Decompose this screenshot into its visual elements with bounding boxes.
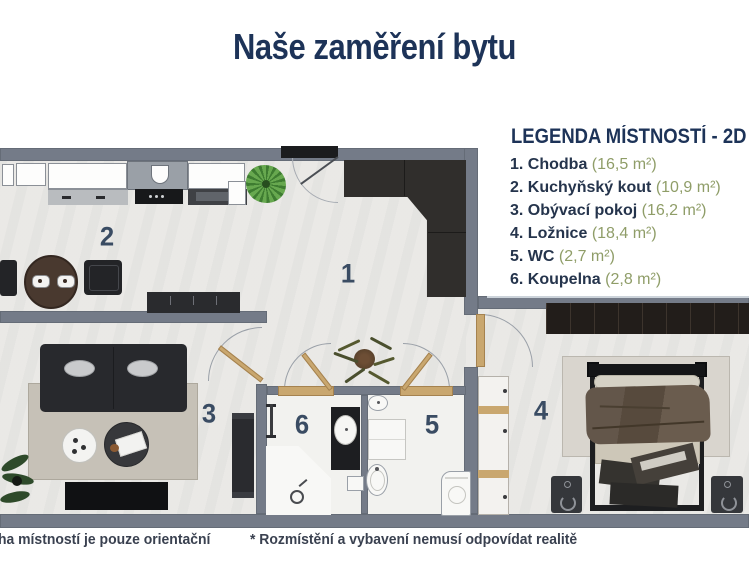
sideboard-line bbox=[216, 296, 217, 305]
cooktop-knob bbox=[155, 195, 158, 198]
appliance-lid bbox=[196, 192, 228, 201]
wardrobe-seam bbox=[404, 160, 405, 196]
footnote-left: ha místností je pouze orientační bbox=[0, 531, 210, 548]
page-title: Naše zaměření bytu bbox=[52, 26, 696, 68]
armchair-seat bbox=[89, 265, 119, 291]
bedroom-door-leaf bbox=[476, 314, 485, 367]
room-label-kitchen: 2 bbox=[100, 222, 114, 253]
plant-frond bbox=[370, 337, 393, 351]
cooktop-knob bbox=[149, 195, 152, 198]
sink-basin-icon bbox=[151, 165, 169, 184]
dining-table bbox=[24, 255, 78, 309]
tv-unit bbox=[65, 482, 168, 510]
decor-dot bbox=[72, 449, 77, 454]
legend-item: 6. Koupelna (2,8 m²) bbox=[510, 270, 749, 289]
nightstand-left bbox=[551, 476, 582, 513]
cooktop-knob bbox=[161, 195, 164, 198]
armchair-left bbox=[0, 260, 17, 296]
counter-handle bbox=[96, 196, 105, 199]
washbasin-icon bbox=[334, 415, 357, 445]
bedroom-shelf bbox=[478, 376, 509, 515]
chair-dot bbox=[38, 279, 42, 283]
plant-center bbox=[262, 180, 270, 188]
room-label-living: 3 bbox=[202, 399, 216, 430]
counter-handle bbox=[62, 196, 71, 199]
kitchen-sink-unit bbox=[127, 161, 188, 190]
room-label-bathroom: 6 bbox=[295, 410, 309, 441]
sofa-seam bbox=[113, 347, 114, 409]
plant-icon-hall bbox=[246, 165, 286, 203]
book-icon bbox=[115, 431, 147, 457]
bedroom-wardrobe bbox=[546, 303, 749, 334]
plant-frond bbox=[344, 367, 365, 383]
decor-dot bbox=[73, 438, 78, 443]
legend-heading: LEGENDA MÍSTNOSTÍ - 2D bbox=[511, 125, 720, 149]
wall-bath-wc-divider bbox=[361, 395, 368, 514]
legend-panel: LEGENDA MÍSTNOSTÍ - 2D 1. Chodba (16,5 m… bbox=[487, 110, 749, 298]
wc-cabinet bbox=[368, 419, 406, 460]
floorplan-page: Naše zaměření bytu bbox=[0, 0, 749, 562]
plant-center bbox=[12, 476, 22, 486]
wardrobe-seam bbox=[428, 232, 466, 233]
legend-item: 1. Chodba (16,5 m²) bbox=[510, 155, 749, 174]
vanity-cabinet bbox=[331, 407, 360, 470]
legend-item: 3. Obývací pokoj (16,2 m²) bbox=[510, 201, 749, 220]
dining-chair-icon bbox=[57, 275, 75, 288]
chair-dot bbox=[63, 279, 67, 283]
plant-icon-spider bbox=[333, 336, 395, 390]
footnote-right: * Rozmístění a vybavení nemusí odpovídat… bbox=[250, 531, 577, 548]
wall-top bbox=[0, 148, 478, 161]
entrance-door-icon bbox=[281, 146, 338, 158]
armchair-right bbox=[84, 260, 122, 295]
wall-bottom bbox=[0, 514, 749, 528]
sideboard-line bbox=[193, 296, 194, 305]
plant-frond bbox=[337, 339, 360, 352]
legend-item: 5. WC (2,7 m²) bbox=[510, 247, 749, 266]
toilet-icon bbox=[366, 464, 388, 496]
sofa-pillow bbox=[127, 360, 158, 377]
kitchen-cart bbox=[228, 181, 246, 205]
room-label-hallway: 1 bbox=[341, 259, 355, 290]
living-cabinet bbox=[232, 413, 254, 498]
wc-sink-icon bbox=[368, 395, 388, 411]
sideboard bbox=[147, 292, 240, 313]
sofa bbox=[40, 344, 187, 412]
plant-frond bbox=[373, 357, 395, 367]
towel-rail-icon bbox=[266, 404, 276, 438]
plant-pot bbox=[354, 349, 375, 369]
dining-chair-icon bbox=[32, 275, 50, 288]
kitchen-cabinet-small bbox=[2, 164, 14, 186]
kitchen-counter bbox=[48, 189, 128, 205]
decor-bowl bbox=[110, 444, 119, 452]
decor-dot bbox=[81, 445, 86, 450]
legend-item: 2. Kuchyňský kout (10,9 m²) bbox=[510, 178, 749, 197]
bed-blanket bbox=[585, 384, 710, 444]
bath-stool bbox=[347, 476, 364, 491]
wall-bath-top-c bbox=[452, 386, 466, 395]
plant-frond bbox=[368, 370, 390, 385]
foot-tray bbox=[609, 482, 678, 508]
sideboard-line bbox=[170, 296, 171, 305]
plant-icon-living bbox=[0, 452, 40, 516]
cooktop-icon bbox=[135, 189, 183, 204]
kitchen-cabinet-long bbox=[48, 163, 127, 189]
sofa-pillow bbox=[64, 360, 95, 377]
washing-machine-icon bbox=[441, 471, 471, 516]
legend-item: 4. Ložnice (18,4 m²) bbox=[510, 224, 749, 243]
nightstand-right bbox=[711, 476, 743, 513]
wall-right-upper bbox=[464, 148, 478, 315]
wc-door-threshold bbox=[400, 386, 453, 396]
room-label-bedroom: 4 bbox=[534, 396, 548, 427]
kitchen-cabinet bbox=[16, 163, 46, 186]
coffee-table-white bbox=[62, 428, 97, 463]
coffee-table-dark bbox=[104, 422, 149, 467]
room-label-wc: 5 bbox=[425, 410, 439, 441]
